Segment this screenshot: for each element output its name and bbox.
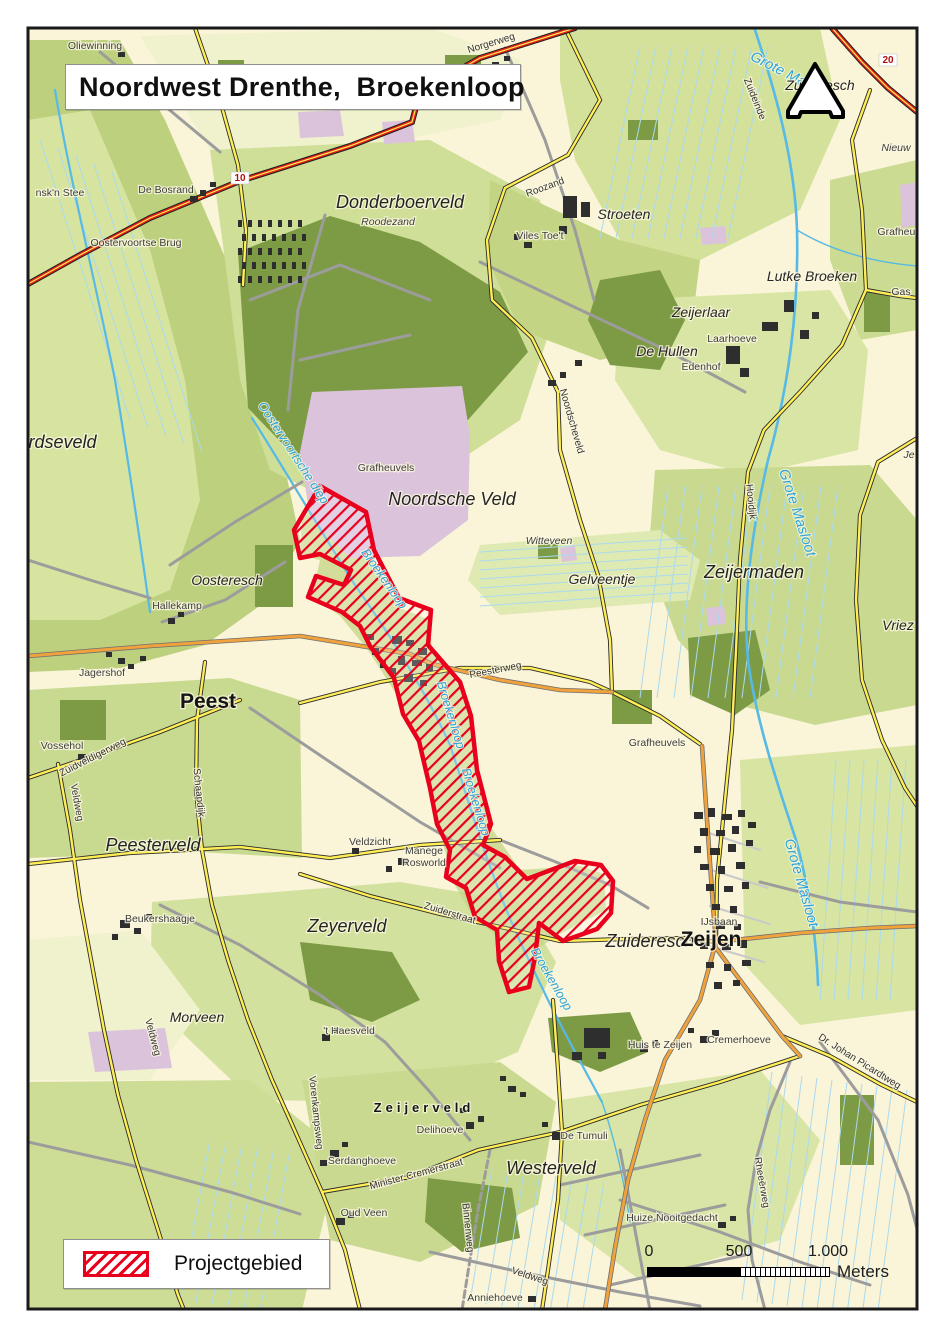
map-label: Zeyerveld: [306, 916, 387, 936]
map-label: Nieuw: [881, 142, 912, 154]
map-label: Peesterveld: [105, 835, 201, 855]
map-label: Westerveld: [506, 1158, 597, 1178]
map-label: Morveen: [170, 1009, 225, 1025]
map-label: Lutke Broeken: [767, 268, 857, 284]
map-label: Grafheuv: [877, 226, 921, 238]
map-label: Noordsche Veld: [388, 489, 516, 509]
map-title-box: Noordwest Drenthe, Broekenloop: [65, 64, 521, 110]
scalebar-tick: 1.000: [808, 1243, 848, 1261]
map-label: De Tumuli: [560, 1130, 607, 1142]
legend-box: Projectgebied: [63, 1239, 330, 1289]
scalebar-segment-hatched: [739, 1267, 830, 1277]
map-label: IJsbaan: [701, 916, 738, 928]
map-label: Delihoeve: [417, 1124, 464, 1136]
map-label: Stroeten: [598, 206, 651, 222]
map-label: Huis te Zeijen: [628, 1039, 692, 1051]
map-label: Peest: [180, 690, 236, 713]
map-label: Noordseveld: [0, 432, 98, 452]
map-label: Oostervoortse Brug: [90, 237, 181, 249]
map-label: Vossehol: [41, 740, 84, 752]
map-label: 't Haesveld: [323, 1025, 375, 1037]
map-label: Viles Toe't: [516, 230, 563, 242]
map-label: Serdanghoeve: [328, 1155, 396, 1167]
map-label: Roodezand: [361, 216, 416, 228]
map-label: Grafheuvels: [629, 737, 686, 749]
legend-label: Projectgebied: [174, 1252, 302, 1276]
map-label: Gelveentje: [569, 571, 636, 587]
map-label: Gas: [891, 286, 910, 298]
map-label: Rosworld: [402, 857, 446, 869]
map-label: 10: [234, 173, 246, 184]
map-label: Zeijerlaar: [671, 304, 732, 320]
scalebar-tick: 0: [645, 1243, 654, 1261]
map-label: Donderboerveld: [336, 192, 465, 212]
map-label: Veldzicht: [349, 836, 391, 848]
map-page: OliewinningNorgerwegnsk'n SteeDe Bosrand…: [0, 0, 945, 1337]
map-label: Laarhoeve: [707, 333, 757, 345]
map-label: Jagershof: [79, 667, 125, 679]
map-label: Manege: [405, 845, 443, 857]
map-label: Huize Nooitgedacht: [626, 1212, 718, 1224]
map-label: nsk'n Stee: [36, 187, 85, 199]
map-label: Zeijerveld: [374, 1100, 475, 1115]
map-label: Edenhof: [681, 361, 720, 373]
map-label: Oliewinning: [68, 40, 122, 52]
map-label: Vriez: [882, 617, 914, 633]
red-hatch-swatch-icon: [83, 1251, 149, 1277]
scalebar: 0 500 1.000 Meters: [640, 1243, 940, 1289]
map-label: Hallekamp: [152, 600, 202, 612]
map-label: Witteveen: [526, 535, 573, 547]
map-label: De Bosrand: [138, 184, 194, 196]
map-label: Grafheuvels: [358, 462, 415, 474]
map-label: Anniehoeve: [467, 1292, 523, 1304]
map-label: 20: [882, 55, 894, 66]
map-label: Oosteresch: [191, 572, 263, 588]
map-label: Zeijen: [681, 928, 742, 951]
map-label: Zeijermaden: [703, 562, 804, 582]
scalebar-tick: 500: [726, 1243, 753, 1261]
scalebar-segment-solid: [647, 1267, 739, 1277]
map-label: De Hullen: [636, 343, 698, 359]
map-label: Beukershaagje: [125, 913, 195, 925]
map-canvas: OliewinningNorgerwegnsk'n SteeDe Bosrand…: [0, 0, 945, 1337]
scalebar-units: Meters: [837, 1262, 889, 1282]
map-label: Je: [902, 449, 914, 461]
page-title: Noordwest Drenthe, Broekenloop: [79, 72, 525, 103]
map-label: Oud Veen: [341, 1207, 388, 1219]
map-label: Cremerhoeve: [707, 1034, 771, 1046]
